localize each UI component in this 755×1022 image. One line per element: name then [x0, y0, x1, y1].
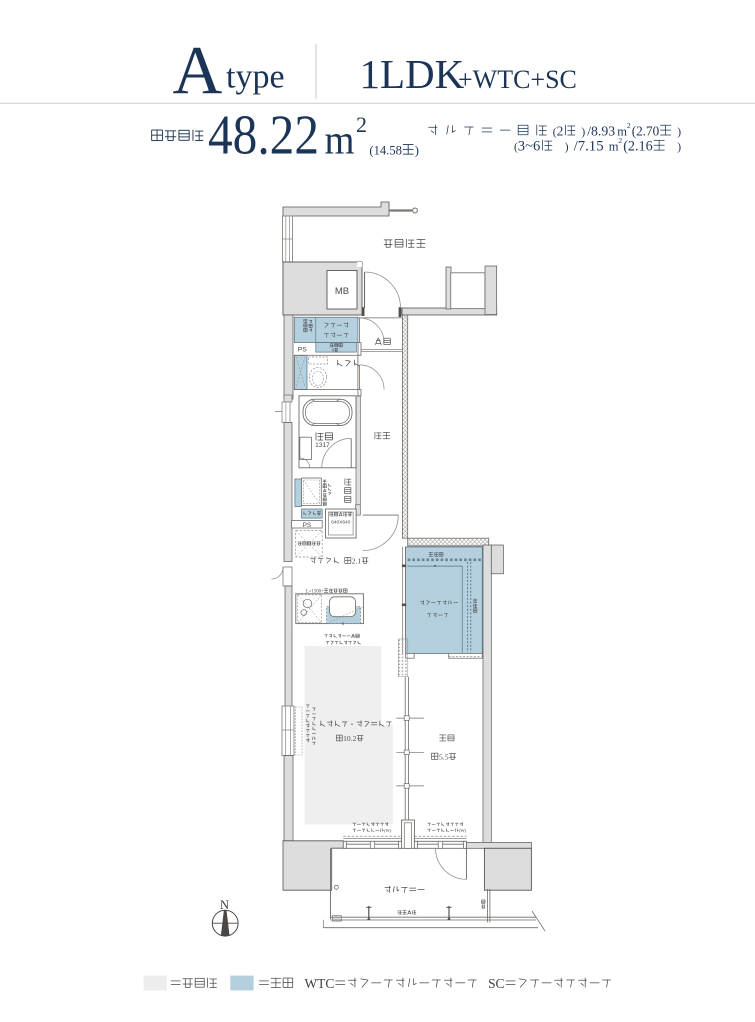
svg-text:): ) [581, 126, 585, 138]
svg-text:): ) [677, 126, 681, 138]
svg-text:(2.70: (2.70 [632, 123, 660, 138]
svg-text:): ) [677, 142, 681, 154]
svg-text:(14.58: (14.58 [369, 144, 402, 158]
svg-text:1317: 1317 [315, 442, 330, 449]
svg-text:/8.93: /8.93 [587, 123, 615, 138]
svg-text:PS: PS [298, 347, 308, 354]
svg-text:48.22: 48.22 [208, 104, 319, 166]
svg-text:3: 3 [518, 139, 525, 155]
svg-text:A: A [173, 32, 223, 108]
svg-text:): ) [415, 144, 419, 158]
svg-text:1LDK: 1LDK [360, 51, 465, 97]
svg-text:m: m [609, 140, 619, 154]
svg-text:2: 2 [557, 123, 564, 138]
svg-text:m: m [325, 116, 355, 162]
svg-text:N: N [220, 898, 229, 912]
svg-text:PS: PS [303, 522, 312, 529]
svg-text:640X640: 640X640 [331, 520, 351, 526]
svg-text:SC: SC [488, 976, 504, 991]
svg-text:type: type [226, 59, 285, 96]
svg-text:2.1: 2.1 [352, 557, 362, 566]
svg-text:): ) [565, 142, 569, 154]
svg-text:10.2: 10.2 [343, 734, 356, 743]
svg-text:2: 2 [627, 121, 631, 130]
svg-text:(W): (W) [384, 828, 392, 833]
svg-text:/7.15: /7.15 [574, 139, 604, 155]
svg-text:2: 2 [618, 136, 622, 145]
svg-text:L=1500+: L=1500+ [306, 590, 324, 595]
svg-text:(W): (W) [459, 828, 467, 833]
svg-text:WTC: WTC [305, 976, 335, 991]
svg-text:2: 2 [356, 112, 367, 137]
svg-text:6: 6 [533, 139, 540, 155]
svg-text:~: ~ [525, 139, 533, 155]
svg-text:(2.16: (2.16 [623, 139, 653, 155]
svg-text:MB: MB [335, 286, 349, 297]
svg-text:5.5: 5.5 [439, 753, 449, 762]
svg-text:+WTC+SC: +WTC+SC [458, 65, 577, 94]
